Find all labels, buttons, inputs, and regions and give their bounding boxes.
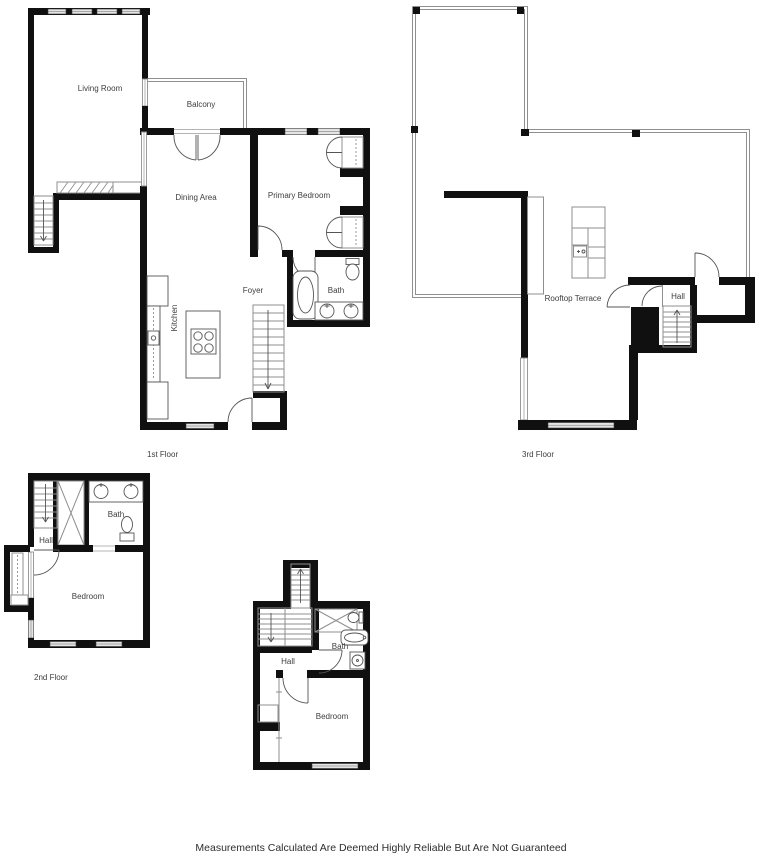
primary-bedroom-label: Primary Bedroom bbox=[268, 191, 331, 200]
primary-bedroom-door bbox=[258, 226, 282, 250]
third-floor-plan: Rooftop Terrace Hall 3rd Floor bbox=[411, 7, 755, 460]
second-floor-label: 2nd Floor bbox=[34, 673, 68, 682]
lower-bath-label: Bath bbox=[332, 642, 348, 651]
second-floor-closet bbox=[53, 481, 89, 545]
second-floor-plan: Hall Bath Bedroom 2nd Floor bbox=[4, 473, 150, 682]
kitchen-fixtures bbox=[147, 276, 220, 419]
outdoor-kitchen bbox=[572, 207, 605, 278]
living-room-walls bbox=[28, 8, 150, 253]
toilet-tank bbox=[120, 533, 134, 541]
first-floor-label: 1st Floor bbox=[147, 450, 178, 459]
disclaimer-text: Measurements Calculated Are Deemed Highl… bbox=[195, 842, 566, 854]
lower-bedroom-door bbox=[283, 678, 308, 703]
stair-void-hatch bbox=[57, 182, 144, 193]
second-bath-label: Bath bbox=[108, 510, 124, 519]
toilet-bowl bbox=[346, 264, 359, 280]
french-doors bbox=[174, 135, 220, 160]
rooftop-terrace-label: Rooftop Terrace bbox=[545, 294, 602, 303]
lower-stairs bbox=[258, 608, 312, 646]
terrace-boundary bbox=[411, 7, 750, 298]
toilet-bowl bbox=[348, 613, 359, 623]
second-floor-interior-walls bbox=[53, 545, 150, 552]
bath-label: Bath bbox=[328, 286, 344, 295]
terrace-planter bbox=[528, 197, 544, 294]
primary-bedroom-closets bbox=[327, 137, 364, 248]
floorplan-page: Living Room Balcony Dining Area Primary … bbox=[0, 0, 763, 864]
living-room-label: Living Room bbox=[78, 84, 123, 93]
post bbox=[632, 130, 640, 137]
third-floor-hall-walls bbox=[607, 253, 755, 353]
lower-floor-plan: Hall Bath Bedroom bbox=[253, 560, 370, 770]
post bbox=[413, 7, 420, 14]
terrace-door-arc bbox=[695, 253, 719, 277]
third-floor-stairs bbox=[663, 306, 691, 347]
cabinet bbox=[147, 382, 168, 419]
lower-bedroom-label: Bedroom bbox=[316, 712, 349, 721]
toilet-tank bbox=[359, 612, 363, 623]
foyer-stairs bbox=[253, 305, 284, 392]
second-floor-balcony bbox=[4, 545, 30, 612]
dining-area-label: Dining Area bbox=[175, 193, 217, 202]
kitchen-label: Kitchen bbox=[170, 305, 179, 332]
post bbox=[517, 7, 524, 14]
second-bedroom-label: Bedroom bbox=[72, 592, 105, 601]
first-floor-left-stairs bbox=[34, 196, 53, 245]
post bbox=[521, 129, 529, 136]
lower-hall-label: Hall bbox=[281, 657, 295, 666]
second-floor-bedroom-door bbox=[34, 550, 59, 575]
floorplan-canvas: Living Room Balcony Dining Area Primary … bbox=[0, 0, 763, 864]
entry-door bbox=[228, 398, 252, 422]
hall-door-arc bbox=[607, 285, 630, 307]
post bbox=[411, 126, 418, 133]
foyer-label: Foyer bbox=[243, 286, 264, 295]
balcony-label: Balcony bbox=[187, 100, 215, 109]
bath-door-arc bbox=[319, 650, 342, 673]
third-hall-label: Hall bbox=[671, 292, 685, 301]
third-floor-label: 3rd Floor bbox=[522, 450, 554, 459]
fridge bbox=[147, 276, 168, 306]
second-hall-label: Hall bbox=[39, 536, 53, 545]
first-floor-plan: Living Room Balcony Dining Area Primary … bbox=[28, 8, 370, 459]
lower-left-strip bbox=[258, 678, 282, 762]
